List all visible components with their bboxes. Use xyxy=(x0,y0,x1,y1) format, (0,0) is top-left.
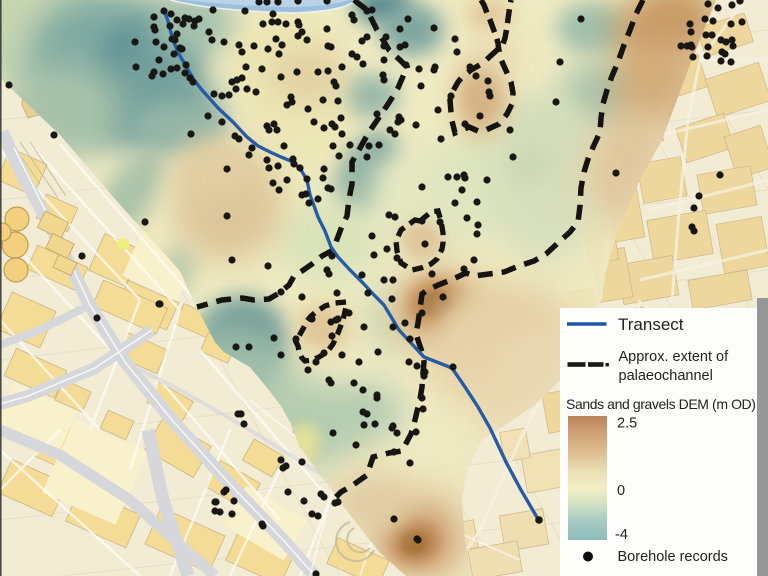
svg-text:palaeochannel: palaeochannel xyxy=(619,368,713,384)
svg-text:-4: -4 xyxy=(615,527,628,543)
svg-text:Transect: Transect xyxy=(618,315,684,334)
svg-text:2.5: 2.5 xyxy=(617,416,637,432)
svg-text:Borehole records: Borehole records xyxy=(618,549,728,565)
svg-text:0: 0 xyxy=(617,483,625,499)
svg-text:Approx. extent of: Approx. extent of xyxy=(619,349,730,365)
svg-text:Sands and gravels DEM (m OD): Sands and gravels DEM (m OD) xyxy=(566,396,756,412)
